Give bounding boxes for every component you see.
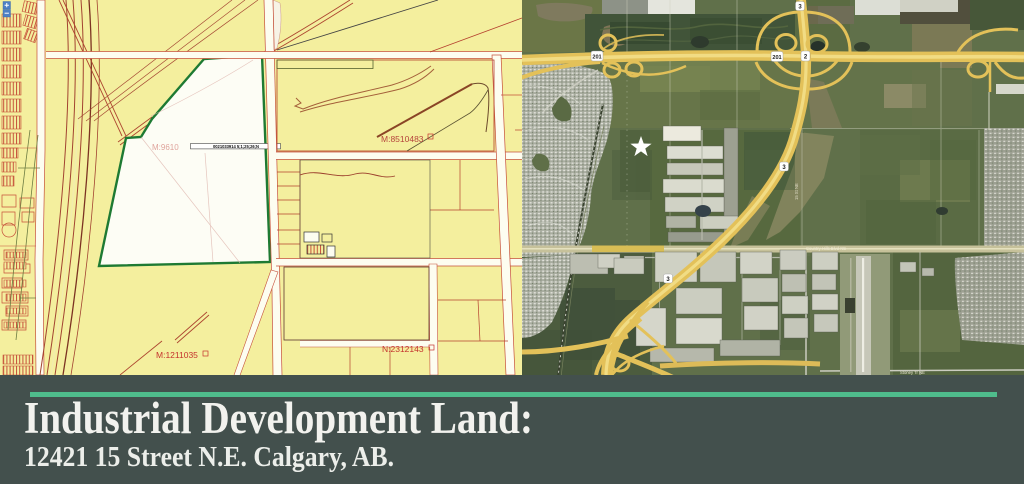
svg-text:Stoney Tr NE: Stoney Tr NE — [900, 370, 925, 375]
svg-text:M:1211035: M:1211035 — [156, 350, 198, 360]
svg-text:M:9610: M:9610 — [152, 143, 179, 152]
svg-text:Country Hills Blvd NE: Country Hills Blvd NE — [806, 246, 846, 251]
svg-text:201: 201 — [772, 55, 781, 61]
svg-text:M:8510483: M:8510483 — [381, 134, 424, 144]
svg-text:201: 201 — [592, 55, 601, 61]
svg-text:Industrial Development Land:: Industrial Development Land: — [24, 393, 533, 443]
svg-text:0021033914 5;1;25;26;N: 0021033914 5;1;25;26;N — [213, 144, 259, 149]
svg-text:12421 15 Street N.E. Calgary,: 12421 15 Street N.E. Calgary, AB. — [24, 442, 394, 473]
svg-text:15 St NE: 15 St NE — [794, 183, 799, 200]
svg-text:N:2312143: N:2312143 — [382, 344, 424, 354]
